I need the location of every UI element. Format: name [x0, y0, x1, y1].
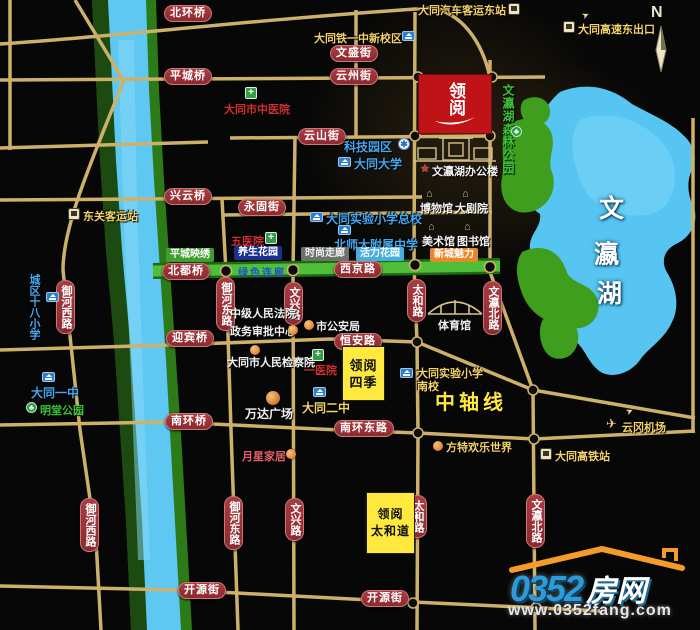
- project-lingyue-siji-box: 领阅 四季: [342, 346, 385, 401]
- hospital-cross-icon: +: [265, 232, 277, 244]
- poi-gonganju: 市公安局: [316, 318, 360, 334]
- road-label-beiduqiao: 北都桥: [162, 263, 210, 280]
- taihedao-line1: 领阅: [367, 506, 414, 523]
- central-axis-label: 中轴线: [435, 386, 507, 415]
- poi-tushuguan: 图书馆: [457, 233, 490, 249]
- lake-name-char: 瀛: [594, 235, 619, 271]
- taihedao-line2: 太和道: [367, 523, 414, 540]
- poi-datong-university: 大同大学: [354, 155, 402, 172]
- poi-datong-erzhong: 大同二中: [302, 399, 350, 416]
- road-label-yingbinqiao: 迎宾桥: [166, 330, 214, 347]
- hospital-cross-icon: +: [245, 87, 257, 99]
- park-icon: ♣: [26, 402, 37, 413]
- poi-court: 中级人民法院: [230, 305, 296, 321]
- road-label-taihelu-n: 太和路: [407, 279, 426, 322]
- poi-yuexing-home: 月星家居: [242, 448, 286, 464]
- road-label-yuhexilu-n: 御河西路: [56, 280, 75, 334]
- park-icon: ♣: [511, 126, 522, 137]
- logo-url: www.0352fang.com: [508, 602, 672, 620]
- zone-yangsheng: 养生花园: [234, 246, 282, 260]
- zone-huoli: 活力花园: [356, 247, 404, 261]
- project-lingyue-taihedao-box: 领阅 太和道: [366, 492, 415, 554]
- poi-bangonglou: 文瀛湖办公楼: [432, 163, 498, 179]
- bus-station-icon: [508, 3, 520, 15]
- poi-dot-icon: [288, 325, 298, 335]
- poi-bus-east-station: 大同汽车客运东站: [418, 2, 506, 18]
- project-lingyue-name: 领阅: [446, 82, 464, 116]
- road-label-nanhuandonglu: 南环东路: [334, 420, 394, 437]
- school-icon: [402, 31, 415, 41]
- gallery-icon: ⌂: [428, 222, 435, 232]
- lake-name-char: 文: [599, 189, 624, 225]
- project-lingyue-box: 领阅: [418, 74, 492, 134]
- poi-fangte: 方特欢乐世界: [446, 439, 512, 455]
- school-icon: [313, 387, 326, 397]
- map-canvas: N 北环桥 平城桥 文盛街 云州街 云山街 兴云桥 永固街 北都桥 西京路 迎宾…: [0, 0, 700, 630]
- poi-mingtang-park: 明堂公园: [40, 402, 84, 418]
- poi-dajuyuan: 大剧院: [455, 200, 488, 216]
- poi-gaotie-station: 大同高铁站: [555, 448, 610, 464]
- road-label-beihuanqiao: 北环桥: [164, 5, 212, 22]
- road-label-xingyunqiao: 兴云桥: [164, 188, 212, 205]
- theater-icon: ⌂: [462, 189, 469, 199]
- poi-chengqu18-primary: 城区十八小学: [26, 274, 42, 340]
- poi-tiyuguan: 体育馆: [438, 317, 471, 333]
- zone-lvselianlang: 绿色连廊: [238, 264, 286, 279]
- road-label-pingchengqiao: 平城桥: [164, 68, 212, 85]
- poi-zhongyi-hospital: 大同市中医院: [224, 101, 290, 117]
- poi-keji-park: 科技园区: [344, 138, 392, 155]
- map-base-svg: [0, 0, 700, 630]
- coach-station-icon: [68, 208, 80, 220]
- calligraphy-swoosh: [433, 116, 477, 126]
- library-icon: ⌂: [464, 222, 471, 232]
- road-label-wenyingbeilu-s: 文瀛北路: [526, 494, 545, 548]
- tech-park-icon: ✱: [398, 138, 410, 150]
- road-label-wenxinglu-s: 文兴路: [285, 498, 304, 541]
- office-building-illustration: [414, 138, 496, 161]
- poi-dot-icon: [286, 449, 296, 459]
- school-icon: [400, 368, 413, 378]
- road-label-wenyingbeilu-n: 文瀛北路: [483, 281, 502, 335]
- hospital-cross-icon: +: [312, 349, 324, 361]
- road-label-yunzhoujie: 云州街: [330, 68, 378, 85]
- zone-xincheng: 新城魅力: [430, 248, 478, 262]
- airplane-icon: ✈: [606, 416, 617, 432]
- siji-line1: 领阅: [343, 357, 384, 374]
- poi-dot-icon: [433, 441, 443, 451]
- school-icon: [310, 212, 323, 222]
- museum-icon: ⌂: [426, 189, 433, 199]
- poi-wanda-plaza: 万达广场: [245, 405, 293, 422]
- school-icon: [338, 225, 351, 235]
- lake-name-char: 湖: [597, 274, 622, 310]
- poi-zhengwu-center: 政务审批中心: [230, 323, 296, 339]
- road-label-yonggujie: 永固街: [238, 199, 286, 216]
- road-label-yunshanjie: 云山街: [298, 128, 346, 145]
- office-star-icon: ★: [420, 162, 430, 175]
- road-label-yuhedonglu-s: 御河东路: [224, 496, 243, 550]
- school-icon: [338, 157, 351, 167]
- road-label-nanhuanqiao: 南环桥: [165, 413, 213, 430]
- wanda-dot-icon: [266, 391, 280, 405]
- poi-tieyi-school: 大同铁一中新校区: [314, 30, 402, 46]
- compass-n-label: N: [651, 4, 663, 22]
- poi-bowuguan: 博物馆: [420, 200, 453, 216]
- poi-dot-icon: [304, 320, 314, 330]
- train-station-icon: [540, 448, 552, 460]
- stadium-illustration: [428, 300, 482, 314]
- siji-line2: 四季: [343, 374, 384, 391]
- road-label-wenshengjie: 文盛街: [330, 45, 378, 62]
- road-label-yuhexilu-s: 御河西路: [80, 498, 99, 552]
- road-label-kaiyuanjie-west: 开源街: [178, 582, 226, 599]
- zone-shishang: 时尚走廊: [301, 247, 349, 261]
- poi-jianchayuan: 大同市人民检察院: [227, 354, 315, 370]
- poi-yiyiyuan-hospital: 一医院: [304, 362, 337, 378]
- road-label-kaiyuanjie-east: 开源街: [361, 590, 409, 607]
- poi-highway-east-exit: 大同高速东出口: [578, 21, 655, 37]
- school-icon: [42, 372, 55, 382]
- road-label-xijinglu: 西京路: [334, 261, 382, 278]
- zone-pingchengyingxiu: 平城映绣: [166, 248, 214, 262]
- poi-dongguan-station: 东关客运站: [83, 208, 138, 224]
- poi-yungang-airport: 云冈机场: [622, 419, 666, 435]
- school-icon: [46, 292, 59, 302]
- poi-datong-yizhong: 大同一中: [31, 384, 79, 401]
- highway-exit-icon: [563, 21, 575, 33]
- poi-meishuguan: 美术馆: [422, 233, 455, 249]
- site-watermark: 0352 房网 www.0352fang.com: [504, 544, 700, 628]
